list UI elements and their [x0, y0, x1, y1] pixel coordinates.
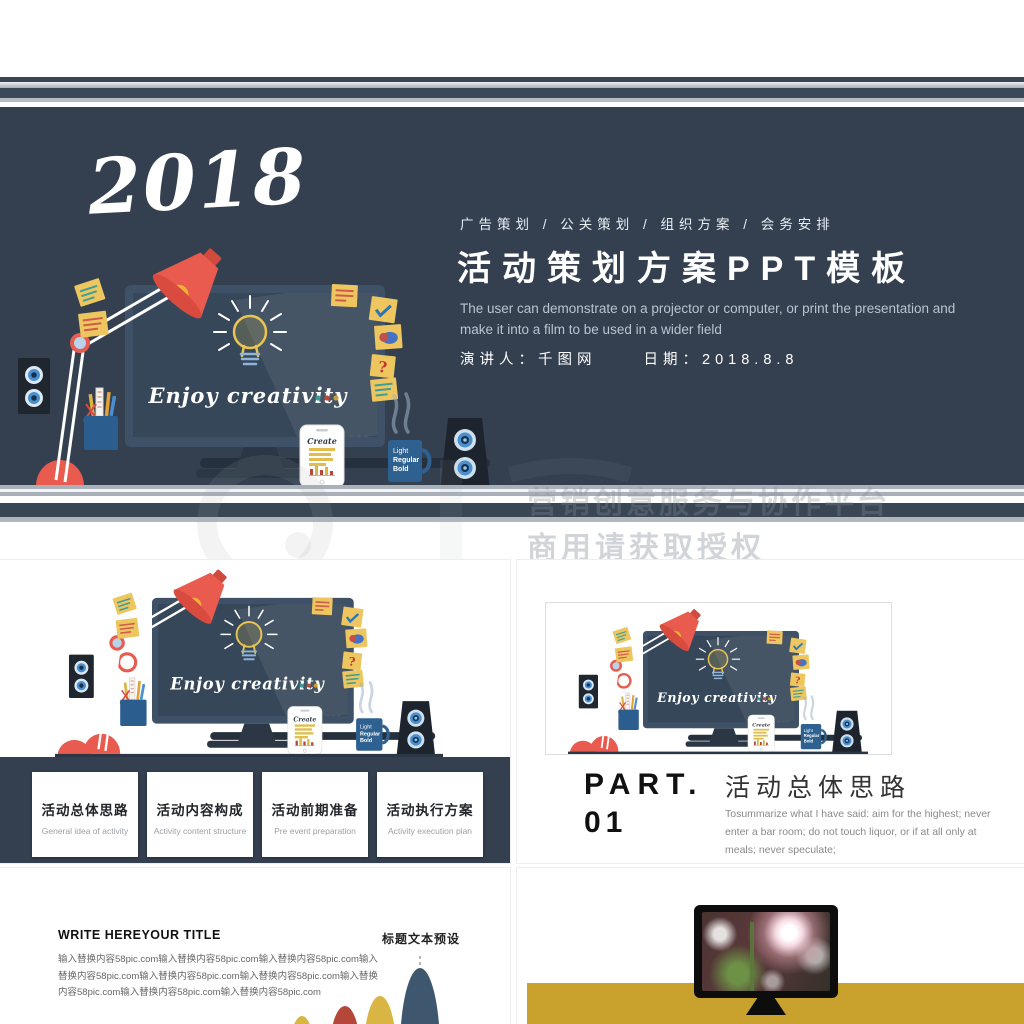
stripe-top-3	[0, 88, 1024, 98]
agenda-item-1: 活动总体思路 General idea of activity	[32, 772, 138, 857]
photo-monitor	[694, 905, 838, 998]
agenda-item-subtitle: General idea of activity	[32, 826, 138, 836]
peaks-chart-svg	[280, 930, 510, 1024]
desk-scene-illustration	[55, 563, 443, 757]
stripe-top-4	[0, 98, 1024, 102]
agenda-item-title: 活动内容构成	[147, 799, 253, 819]
part-body: Tosummarize what I have said: aim for th…	[725, 806, 1007, 860]
agenda-item-2: 活动内容构成 Activity content structure	[147, 772, 253, 857]
agenda-item-title: 活动总体思路	[32, 799, 138, 819]
desk-scene-illustration	[568, 604, 868, 754]
cover-slide: 2018 广告策划 / 公关策划 / 组织方案 / 会务安排 活动策划方案PPT…	[0, 107, 1024, 485]
peaks-chart	[290, 968, 440, 1024]
cover-tagline: 广告策划 / 公关策划 / 组织方案 / 会务安排	[460, 213, 835, 233]
agenda-item-3: 活动前期准备 Pre event preparation	[262, 772, 368, 857]
image-slide	[517, 868, 1024, 1024]
part-label: PART.	[584, 768, 703, 802]
illustration-frame	[545, 602, 892, 755]
agenda-item-subtitle: Activity execution plan	[377, 826, 483, 836]
agenda-slide: 活动总体思路 General idea of activity 活动内容构成 A…	[0, 560, 510, 863]
agenda-item-subtitle: Activity content structure	[147, 826, 253, 836]
cover-subtitle-en: The user can demonstrate on a projector …	[460, 299, 972, 341]
chart-slide-title: WRITE HEREYOUR TITLE	[58, 928, 221, 942]
agenda-item-subtitle: Pre event preparation	[262, 826, 368, 836]
chart-slide: WRITE HEREYOUR TITLE 输入替换内容58pic.com输入替换…	[0, 868, 510, 1024]
agenda-item-4: 活动执行方案 Activity execution plan	[377, 772, 483, 857]
year-text: 2018	[86, 131, 310, 231]
cover-meta: 演讲人：千图网 日期：2018.8.8	[460, 348, 798, 369]
agenda-item-title: 活动前期准备	[262, 799, 368, 819]
part-title: 活动总体思路	[725, 768, 911, 804]
cover-title: 活动策划方案PPT模板	[457, 241, 916, 290]
part-number: 01	[584, 806, 627, 840]
chart-peak-3	[364, 996, 396, 1024]
plant-stalk	[750, 922, 754, 991]
chart-peak-4	[400, 968, 440, 1024]
date-text: 日期：2018.8.8	[644, 352, 799, 368]
chart-peak-1	[290, 1016, 314, 1024]
watermark-line-1: 营销创意服务与协作平台	[527, 478, 890, 522]
agenda-item-title: 活动执行方案	[377, 799, 483, 819]
presenter-text: 演讲人：千图网	[460, 352, 597, 368]
nature-photo	[702, 912, 830, 991]
chart-peak-2	[330, 1006, 360, 1024]
part-divider-slide: PART. 01 活动总体思路 Tosummarize what I have …	[517, 560, 1024, 863]
ppt-template-preview: 2018 广告策划 / 公关策划 / 组织方案 / 会务安排 活动策划方案PPT…	[0, 0, 1024, 1024]
